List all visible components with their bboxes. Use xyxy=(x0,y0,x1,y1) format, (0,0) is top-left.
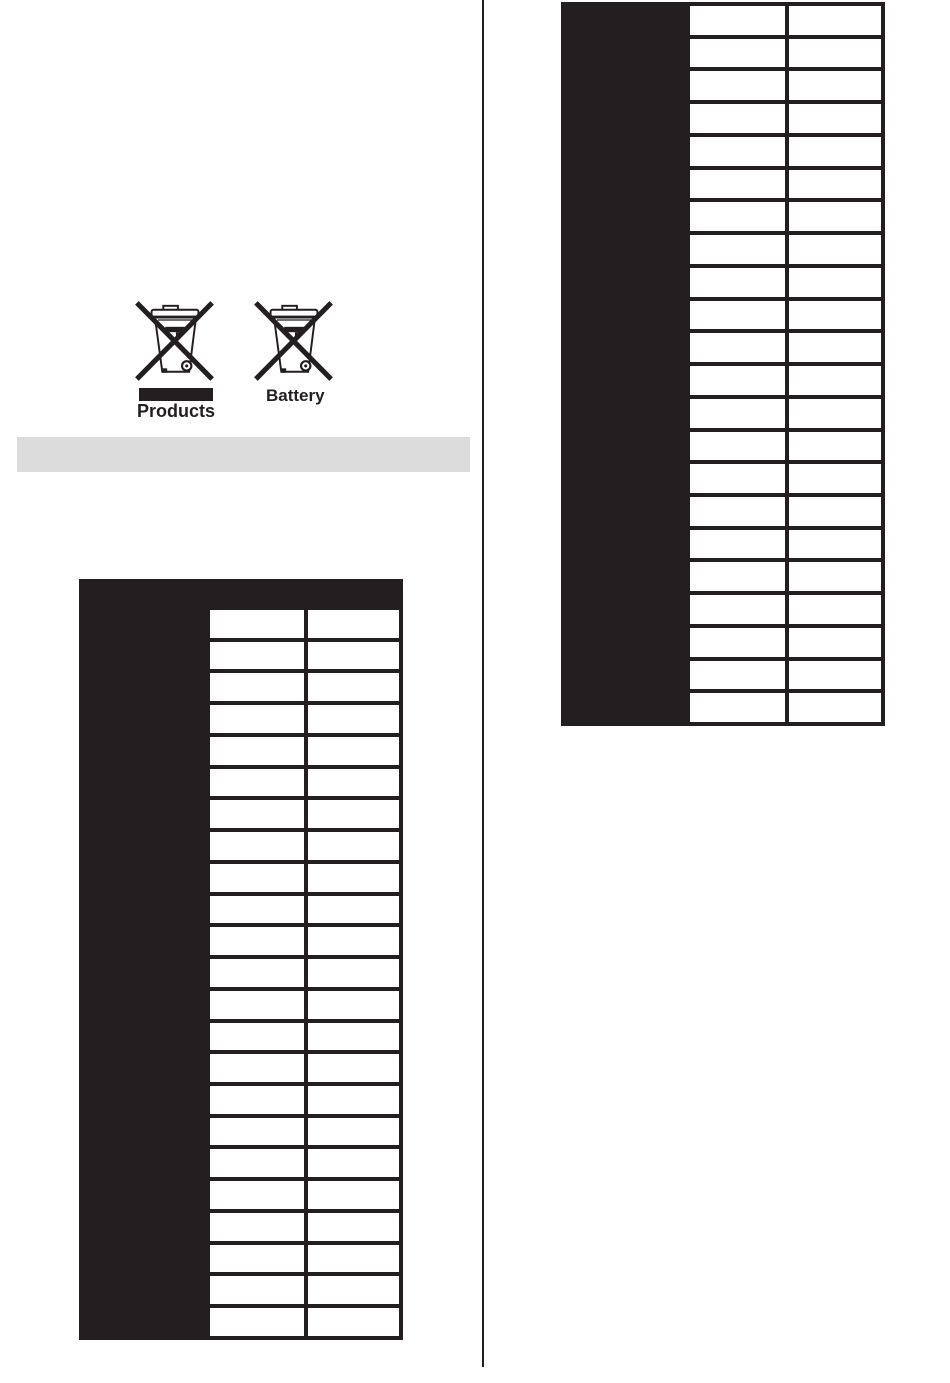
table-cell xyxy=(789,170,881,199)
table-cell xyxy=(308,1149,399,1177)
table-cell xyxy=(690,530,785,559)
table-cell xyxy=(308,642,399,670)
table-cell xyxy=(690,268,785,297)
table-cell xyxy=(789,399,881,428)
table-cell xyxy=(210,610,304,638)
table-cell xyxy=(789,104,881,133)
spec-table-right-label-column xyxy=(561,6,690,722)
table-row xyxy=(690,235,881,264)
table-row xyxy=(210,705,399,733)
table-row xyxy=(690,333,881,362)
table-row xyxy=(210,864,399,892)
table-cell xyxy=(308,1276,399,1304)
table-cell xyxy=(789,202,881,231)
table-cell xyxy=(210,864,304,892)
table-row xyxy=(690,464,881,493)
table-row xyxy=(690,170,881,199)
table-cell xyxy=(308,800,399,828)
table-cell xyxy=(690,137,785,166)
table-cell xyxy=(690,301,785,330)
table-cell xyxy=(210,800,304,828)
table-cell xyxy=(308,896,399,924)
table-cell xyxy=(210,1245,304,1273)
table-cell xyxy=(308,769,399,797)
table-cell xyxy=(690,39,785,68)
table-cell xyxy=(308,864,399,892)
weee-battery-bin-icon xyxy=(252,296,335,384)
table-cell xyxy=(690,661,785,690)
table-cell xyxy=(789,562,881,591)
table-cell xyxy=(690,497,785,526)
table-row xyxy=(210,1054,399,1082)
table-cell xyxy=(308,705,399,733)
table-row xyxy=(210,1118,399,1146)
table-row xyxy=(210,642,399,670)
table-cell xyxy=(210,1054,304,1082)
table-cell xyxy=(308,1181,399,1209)
table-cell xyxy=(690,235,785,264)
table-row xyxy=(690,497,881,526)
table-row xyxy=(210,800,399,828)
table-cell xyxy=(789,235,881,264)
table-cell xyxy=(210,705,304,733)
table-row xyxy=(210,1023,399,1051)
table-row xyxy=(690,6,881,35)
table-cell xyxy=(789,333,881,362)
table-cell xyxy=(789,301,881,330)
table-row xyxy=(210,1308,399,1336)
table-row xyxy=(210,673,399,701)
products-black-bar xyxy=(139,388,213,401)
section-header-bar xyxy=(17,437,470,472)
table-cell xyxy=(789,39,881,68)
table-cell xyxy=(690,6,785,35)
table-cell xyxy=(210,1118,304,1146)
table-row xyxy=(690,530,881,559)
spec-table-left xyxy=(79,579,403,1340)
table-row xyxy=(210,737,399,765)
table-cell xyxy=(210,1213,304,1241)
table-cell xyxy=(210,1023,304,1051)
spec-table-left-rows xyxy=(210,610,399,1336)
table-cell xyxy=(210,1181,304,1209)
table-cell xyxy=(308,610,399,638)
table-cell xyxy=(789,268,881,297)
table-cell xyxy=(789,628,881,657)
table-row xyxy=(690,661,881,690)
table-cell xyxy=(690,104,785,133)
table-cell xyxy=(210,927,304,955)
table-cell xyxy=(308,1054,399,1082)
table-cell xyxy=(308,832,399,860)
table-cell xyxy=(690,202,785,231)
table-row xyxy=(690,366,881,395)
table-cell xyxy=(789,661,881,690)
table-cell xyxy=(308,927,399,955)
table-row xyxy=(210,1213,399,1241)
table-cell xyxy=(308,959,399,987)
table-cell xyxy=(210,642,304,670)
table-cell xyxy=(308,1213,399,1241)
table-cell xyxy=(789,366,881,395)
table-cell xyxy=(789,530,881,559)
table-row xyxy=(690,562,881,591)
table-row xyxy=(210,1181,399,1209)
table-cell xyxy=(210,959,304,987)
table-row xyxy=(210,832,399,860)
table-row xyxy=(690,137,881,166)
table-cell xyxy=(690,693,785,722)
spec-table-left-label-column xyxy=(79,610,210,1336)
table-cell xyxy=(690,628,785,657)
table-cell xyxy=(210,737,304,765)
table-cell xyxy=(789,137,881,166)
table-cell xyxy=(789,595,881,624)
table-row xyxy=(210,959,399,987)
table-cell xyxy=(308,991,399,1019)
spec-table-left-body xyxy=(79,610,399,1336)
spec-table-left-header xyxy=(79,579,403,610)
table-row xyxy=(690,628,881,657)
table-row xyxy=(210,1276,399,1304)
table-cell xyxy=(789,432,881,461)
table-cell xyxy=(690,432,785,461)
table-cell xyxy=(308,737,399,765)
table-row xyxy=(690,71,881,100)
table-cell xyxy=(210,1308,304,1336)
table-cell xyxy=(210,832,304,860)
battery-label: Battery xyxy=(266,387,325,404)
table-cell xyxy=(789,6,881,35)
table-cell xyxy=(690,464,785,493)
table-cell xyxy=(690,399,785,428)
table-row xyxy=(690,432,881,461)
table-cell xyxy=(210,769,304,797)
table-row xyxy=(210,1086,399,1114)
table-cell xyxy=(308,1308,399,1336)
table-row xyxy=(210,1245,399,1273)
table-row xyxy=(210,896,399,924)
table-cell xyxy=(210,1149,304,1177)
table-cell xyxy=(789,71,881,100)
table-row xyxy=(690,39,881,68)
table-row xyxy=(690,399,881,428)
table-cell xyxy=(789,693,881,722)
spec-table-right xyxy=(561,2,885,726)
table-cell xyxy=(308,1245,399,1273)
weee-products-bin-icon xyxy=(133,296,216,384)
table-row xyxy=(210,991,399,1019)
table-row xyxy=(690,104,881,133)
table-row xyxy=(690,693,881,722)
table-cell xyxy=(210,896,304,924)
table-cell xyxy=(308,1118,399,1146)
table-cell xyxy=(210,991,304,1019)
table-cell xyxy=(789,497,881,526)
table-cell xyxy=(690,562,785,591)
spec-table-right-rows xyxy=(690,6,881,722)
table-cell xyxy=(690,595,785,624)
table-row xyxy=(210,610,399,638)
table-cell xyxy=(210,1276,304,1304)
table-row xyxy=(690,202,881,231)
table-row xyxy=(690,268,881,297)
products-label: Products xyxy=(137,402,215,420)
table-cell xyxy=(308,673,399,701)
table-cell xyxy=(690,170,785,199)
table-cell xyxy=(789,464,881,493)
table-cell xyxy=(308,1086,399,1114)
column-divider-line xyxy=(482,0,484,1367)
document-page: Products Battery xyxy=(0,0,950,1383)
table-cell xyxy=(690,71,785,100)
table-row xyxy=(210,1149,399,1177)
spec-table-right-body xyxy=(561,6,881,722)
table-cell xyxy=(210,1086,304,1114)
table-cell xyxy=(308,1023,399,1051)
table-cell xyxy=(690,366,785,395)
table-row xyxy=(690,595,881,624)
table-cell xyxy=(690,333,785,362)
table-row xyxy=(210,927,399,955)
table-row xyxy=(690,301,881,330)
table-cell xyxy=(210,673,304,701)
table-row xyxy=(210,769,399,797)
